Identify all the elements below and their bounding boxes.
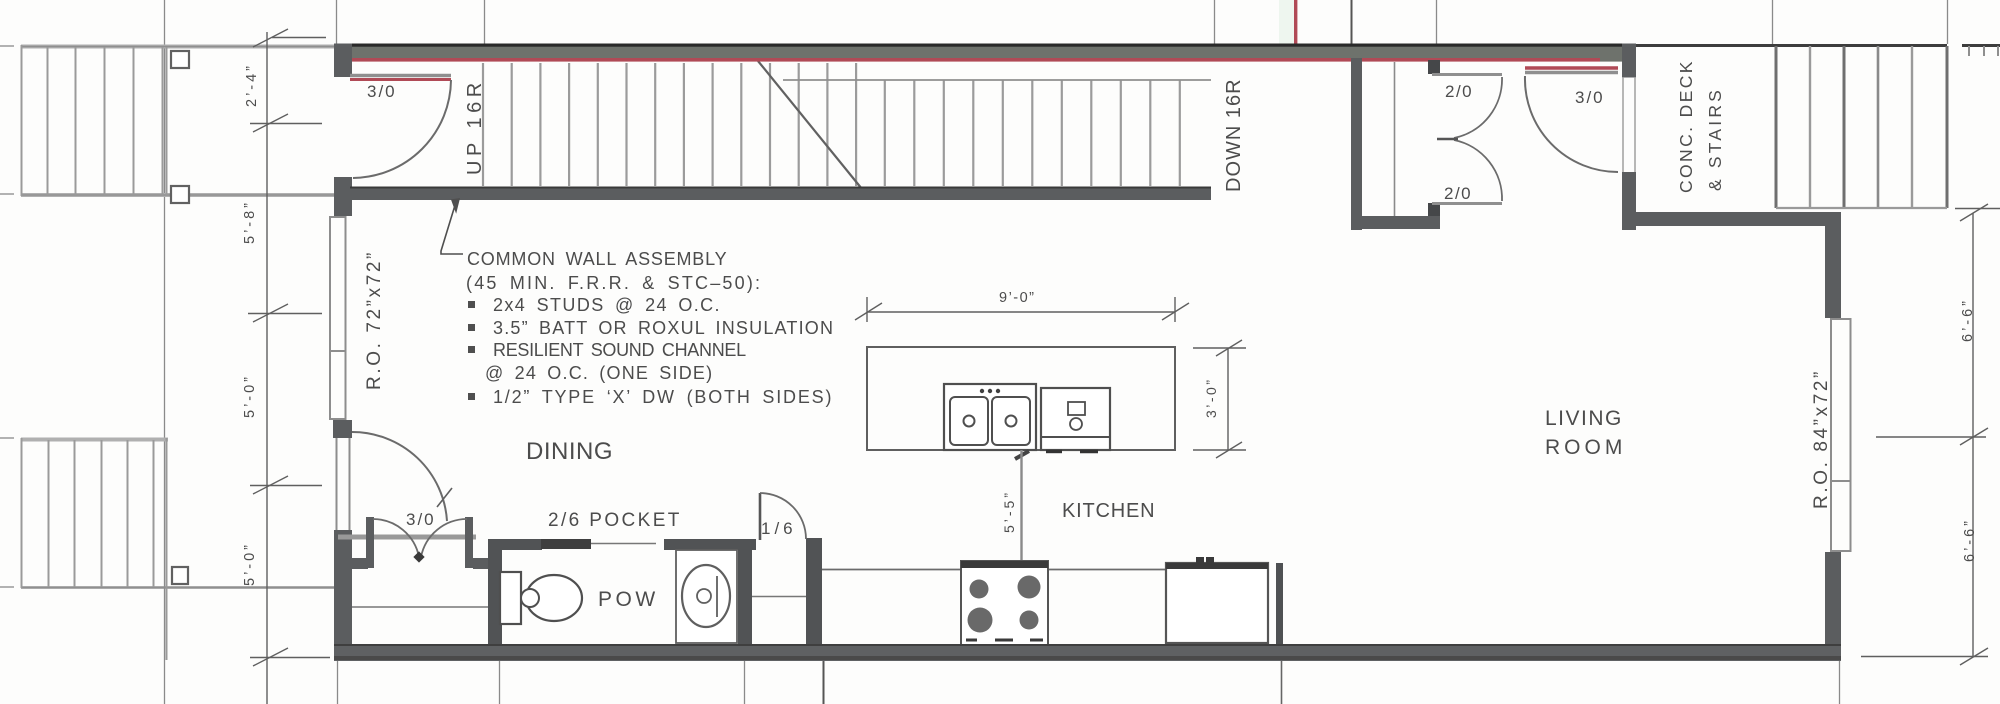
- svg-text:(45 MIN. F.R.R. & STC–50):: (45 MIN. F.R.R. & STC–50):: [466, 273, 762, 293]
- svg-text:3/0: 3/0: [367, 82, 397, 101]
- svg-text:RESILIENT SOUND CHANNEL: RESILIENT SOUND CHANNEL: [493, 340, 746, 360]
- svg-text:3.5” BATT OR ROXUL INSULATION: 3.5” BATT OR ROXUL INSULATION: [493, 318, 834, 338]
- svg-text:2/0: 2/0: [1445, 82, 1473, 101]
- svg-text:KITCHEN: KITCHEN: [1062, 500, 1155, 522]
- svg-text:6’-6”: 6’-6”: [1962, 518, 1978, 562]
- svg-text:3/0: 3/0: [1575, 88, 1605, 107]
- svg-text:& STAIRS: & STAIRS: [1705, 87, 1725, 191]
- svg-text:5’-0”: 5’-0”: [242, 542, 258, 586]
- svg-text:COMMON WALL ASSEMBLY: COMMON WALL ASSEMBLY: [467, 249, 727, 269]
- svg-text:DOWN 16R: DOWN 16R: [1223, 78, 1245, 192]
- svg-text:LIVING: LIVING: [1545, 407, 1623, 430]
- svg-text:5’-8”: 5’-8”: [242, 200, 258, 244]
- svg-text:1/6: 1/6: [761, 519, 797, 538]
- svg-text:@ 24 O.C. (ONE SIDE): @ 24 O.C. (ONE SIDE): [485, 363, 713, 383]
- svg-text:UP 16R: UP 16R: [464, 78, 486, 175]
- svg-text:POW: POW: [598, 588, 659, 611]
- svg-text:5’-0”: 5’-0”: [242, 374, 258, 418]
- svg-text:6’-6”: 6’-6”: [1960, 298, 1976, 342]
- svg-text:5’-5”: 5’-5”: [1001, 490, 1017, 533]
- svg-text:3’-0”: 3’-0”: [1203, 377, 1219, 418]
- svg-text:2/6 POCKET: 2/6 POCKET: [548, 510, 682, 531]
- svg-text:DINING: DINING: [526, 438, 613, 465]
- svg-text:2x4 STUDS @ 24 O.C.: 2x4 STUDS @ 24 O.C.: [493, 295, 721, 315]
- svg-text:1/2” TYPE ‘X’ DW (BOTH SIDES): 1/2” TYPE ‘X’ DW (BOTH SIDES): [493, 387, 833, 407]
- svg-text:R.O. 72”x72”: R.O. 72”x72”: [364, 250, 385, 390]
- svg-text:2/0: 2/0: [1444, 184, 1472, 203]
- svg-text:3/0: 3/0: [406, 510, 436, 529]
- svg-text:9’-0”: 9’-0”: [999, 290, 1036, 306]
- svg-text:CONC. DECK: CONC. DECK: [1676, 59, 1696, 193]
- svg-text:ROOM: ROOM: [1545, 436, 1626, 459]
- svg-text:R.O. 84”x72”: R.O. 84”x72”: [1811, 369, 1832, 509]
- svg-text:2’-4”: 2’-4”: [244, 63, 260, 107]
